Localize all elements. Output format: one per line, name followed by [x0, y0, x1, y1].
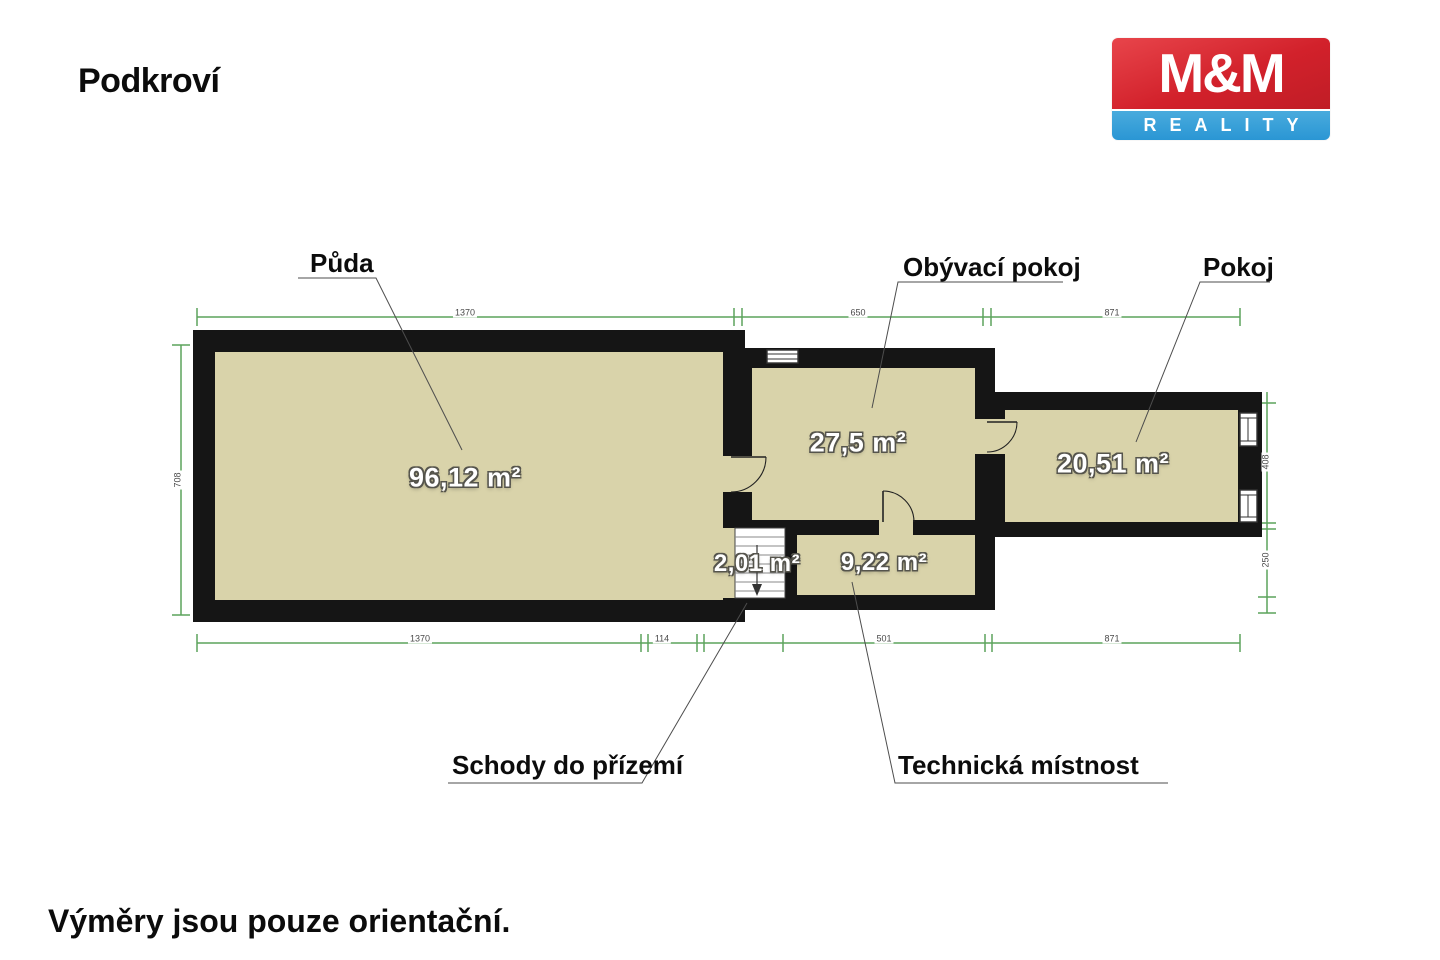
area-puda: 96,12 m² — [409, 463, 521, 494]
dim-bottom-4: 871 — [1102, 635, 1121, 644]
dim-top-3: 871 — [1102, 309, 1121, 318]
area-obyvaci: 27,5 m² — [810, 428, 907, 459]
dim-left-1: 708 — [174, 470, 183, 489]
opening-puda-obyvaci — [723, 456, 752, 492]
label-technicka: Technická místnost — [898, 750, 1139, 781]
label-obyvaci: Obývací pokoj — [903, 252, 1081, 283]
dim-top-1: 1370 — [453, 309, 477, 318]
window-obyvaci-top — [767, 350, 798, 363]
footnote: Výměry jsou pouze orientační. — [48, 903, 510, 940]
opening-obyvaci-tech — [879, 520, 913, 535]
floor-plan-drawing — [0, 0, 1440, 960]
label-schody: Schody do přízemí — [452, 750, 683, 781]
dim-bottom-2: 114 — [653, 635, 671, 644]
area-pokoj: 20,51 m² — [1057, 449, 1169, 480]
dim-bottom-3: 501 — [874, 635, 893, 644]
label-pokoj: Pokoj — [1203, 252, 1274, 283]
dim-right-1: 408 — [1262, 452, 1271, 471]
floorplan-page: Podkroví M&M REALITY — [0, 0, 1440, 960]
label-puda: Půda — [310, 248, 374, 279]
area-schody: 2,01 m² — [714, 550, 800, 578]
dim-bottom-1: 1370 — [408, 635, 432, 644]
dim-right-2: 250 — [1262, 550, 1271, 569]
area-technicka: 9,22 m² — [841, 549, 927, 577]
dim-top-2: 650 — [848, 309, 867, 318]
